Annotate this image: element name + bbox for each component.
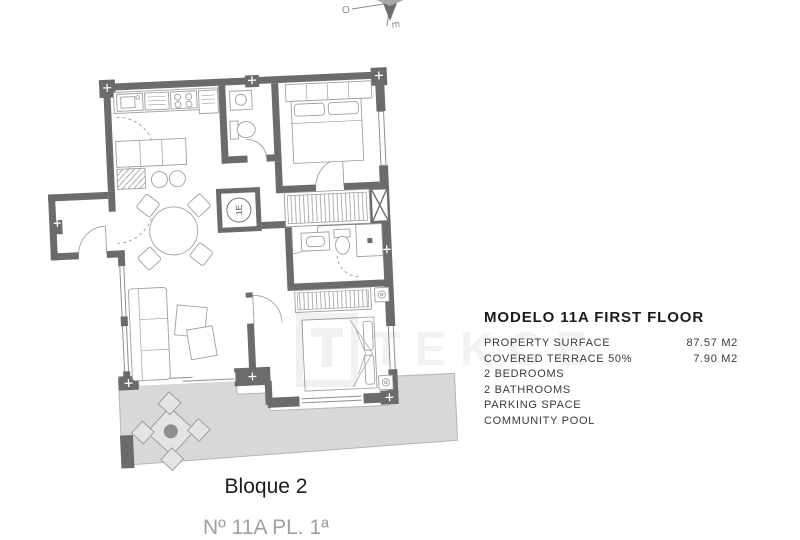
toilet-icon: [334, 229, 351, 255]
info-label: COVERED TERRACE 50%: [484, 352, 632, 368]
floor-plan: O E: [0, 0, 470, 533]
living-dining: [124, 191, 219, 381]
info-value: 87.57 M2: [687, 336, 738, 352]
stove-icon: [170, 91, 197, 109]
plan-title: MODELO 11A FIRST FLOOR: [484, 309, 738, 326]
info-panel: MODELO 11A FIRST FLOOR PROPERTY SURFACE …: [484, 309, 738, 430]
bedroom-1: [285, 81, 374, 164]
wall-lamp-icon: [375, 287, 390, 302]
info-label: 2 BATHROOMS: [484, 383, 571, 399]
bedroom-2: [295, 286, 394, 393]
stool-icon: [151, 171, 168, 188]
elevator-label: 1E: [234, 204, 244, 215]
compass-icon: O E: [342, 0, 408, 29]
info-row-property-surface: PROPERTY SURFACE 87.57 M2: [484, 336, 738, 352]
coffee-table-icon: [173, 303, 217, 360]
info-value: 7.90 M2: [693, 352, 738, 368]
wall-lamp-icon: [379, 375, 394, 390]
info-label: PARKING SPACE: [484, 398, 581, 414]
info-label: COMMUNITY POOL: [484, 414, 595, 430]
bed-icon: [291, 98, 364, 163]
toilet-icon: [230, 120, 256, 139]
covered-terrace-band: [284, 189, 370, 227]
sofa-icon: [128, 287, 170, 381]
dishwasher-icon: [144, 92, 169, 110]
fridge-icon: [198, 90, 218, 114]
kitchen-island: [116, 138, 188, 189]
bathroom-1: [228, 90, 255, 139]
info-label: 2 BEDROOMS: [484, 367, 564, 383]
block-label: Bloque 2: [103, 475, 429, 499]
sink-icon: [229, 90, 252, 110]
info-row-pool: COMMUNITY POOL: [484, 414, 738, 430]
bed-icon: [302, 317, 377, 391]
compass-west-label: O: [342, 5, 350, 16]
info-row-bathrooms: 2 BATHROOMS: [484, 383, 738, 399]
wardrobe-icon: [295, 287, 372, 312]
sink-icon: [116, 93, 143, 111]
info-row-covered-terrace: COVERED TERRACE 50% 7.90 M2: [484, 352, 738, 368]
info-row-bedrooms: 2 BEDROOMS: [484, 367, 738, 383]
sink-icon: [301, 232, 330, 251]
dining-table-icon: [135, 191, 214, 271]
shower-icon: [356, 224, 383, 257]
bathroom-2: [301, 224, 383, 260]
elevator: 1E: [221, 192, 257, 228]
floor-plan-page: O E: [0, 0, 800, 533]
pillar-x-icon: [372, 189, 388, 221]
unit-number-label: Nº 11A PL. 1ª: [103, 516, 429, 540]
compass-east-label: E: [389, 21, 401, 29]
info-row-parking: PARKING SPACE: [484, 398, 738, 414]
kitchen: [113, 88, 221, 190]
info-label: PROPERTY SURFACE: [484, 336, 610, 352]
stool-icon: [169, 170, 186, 187]
